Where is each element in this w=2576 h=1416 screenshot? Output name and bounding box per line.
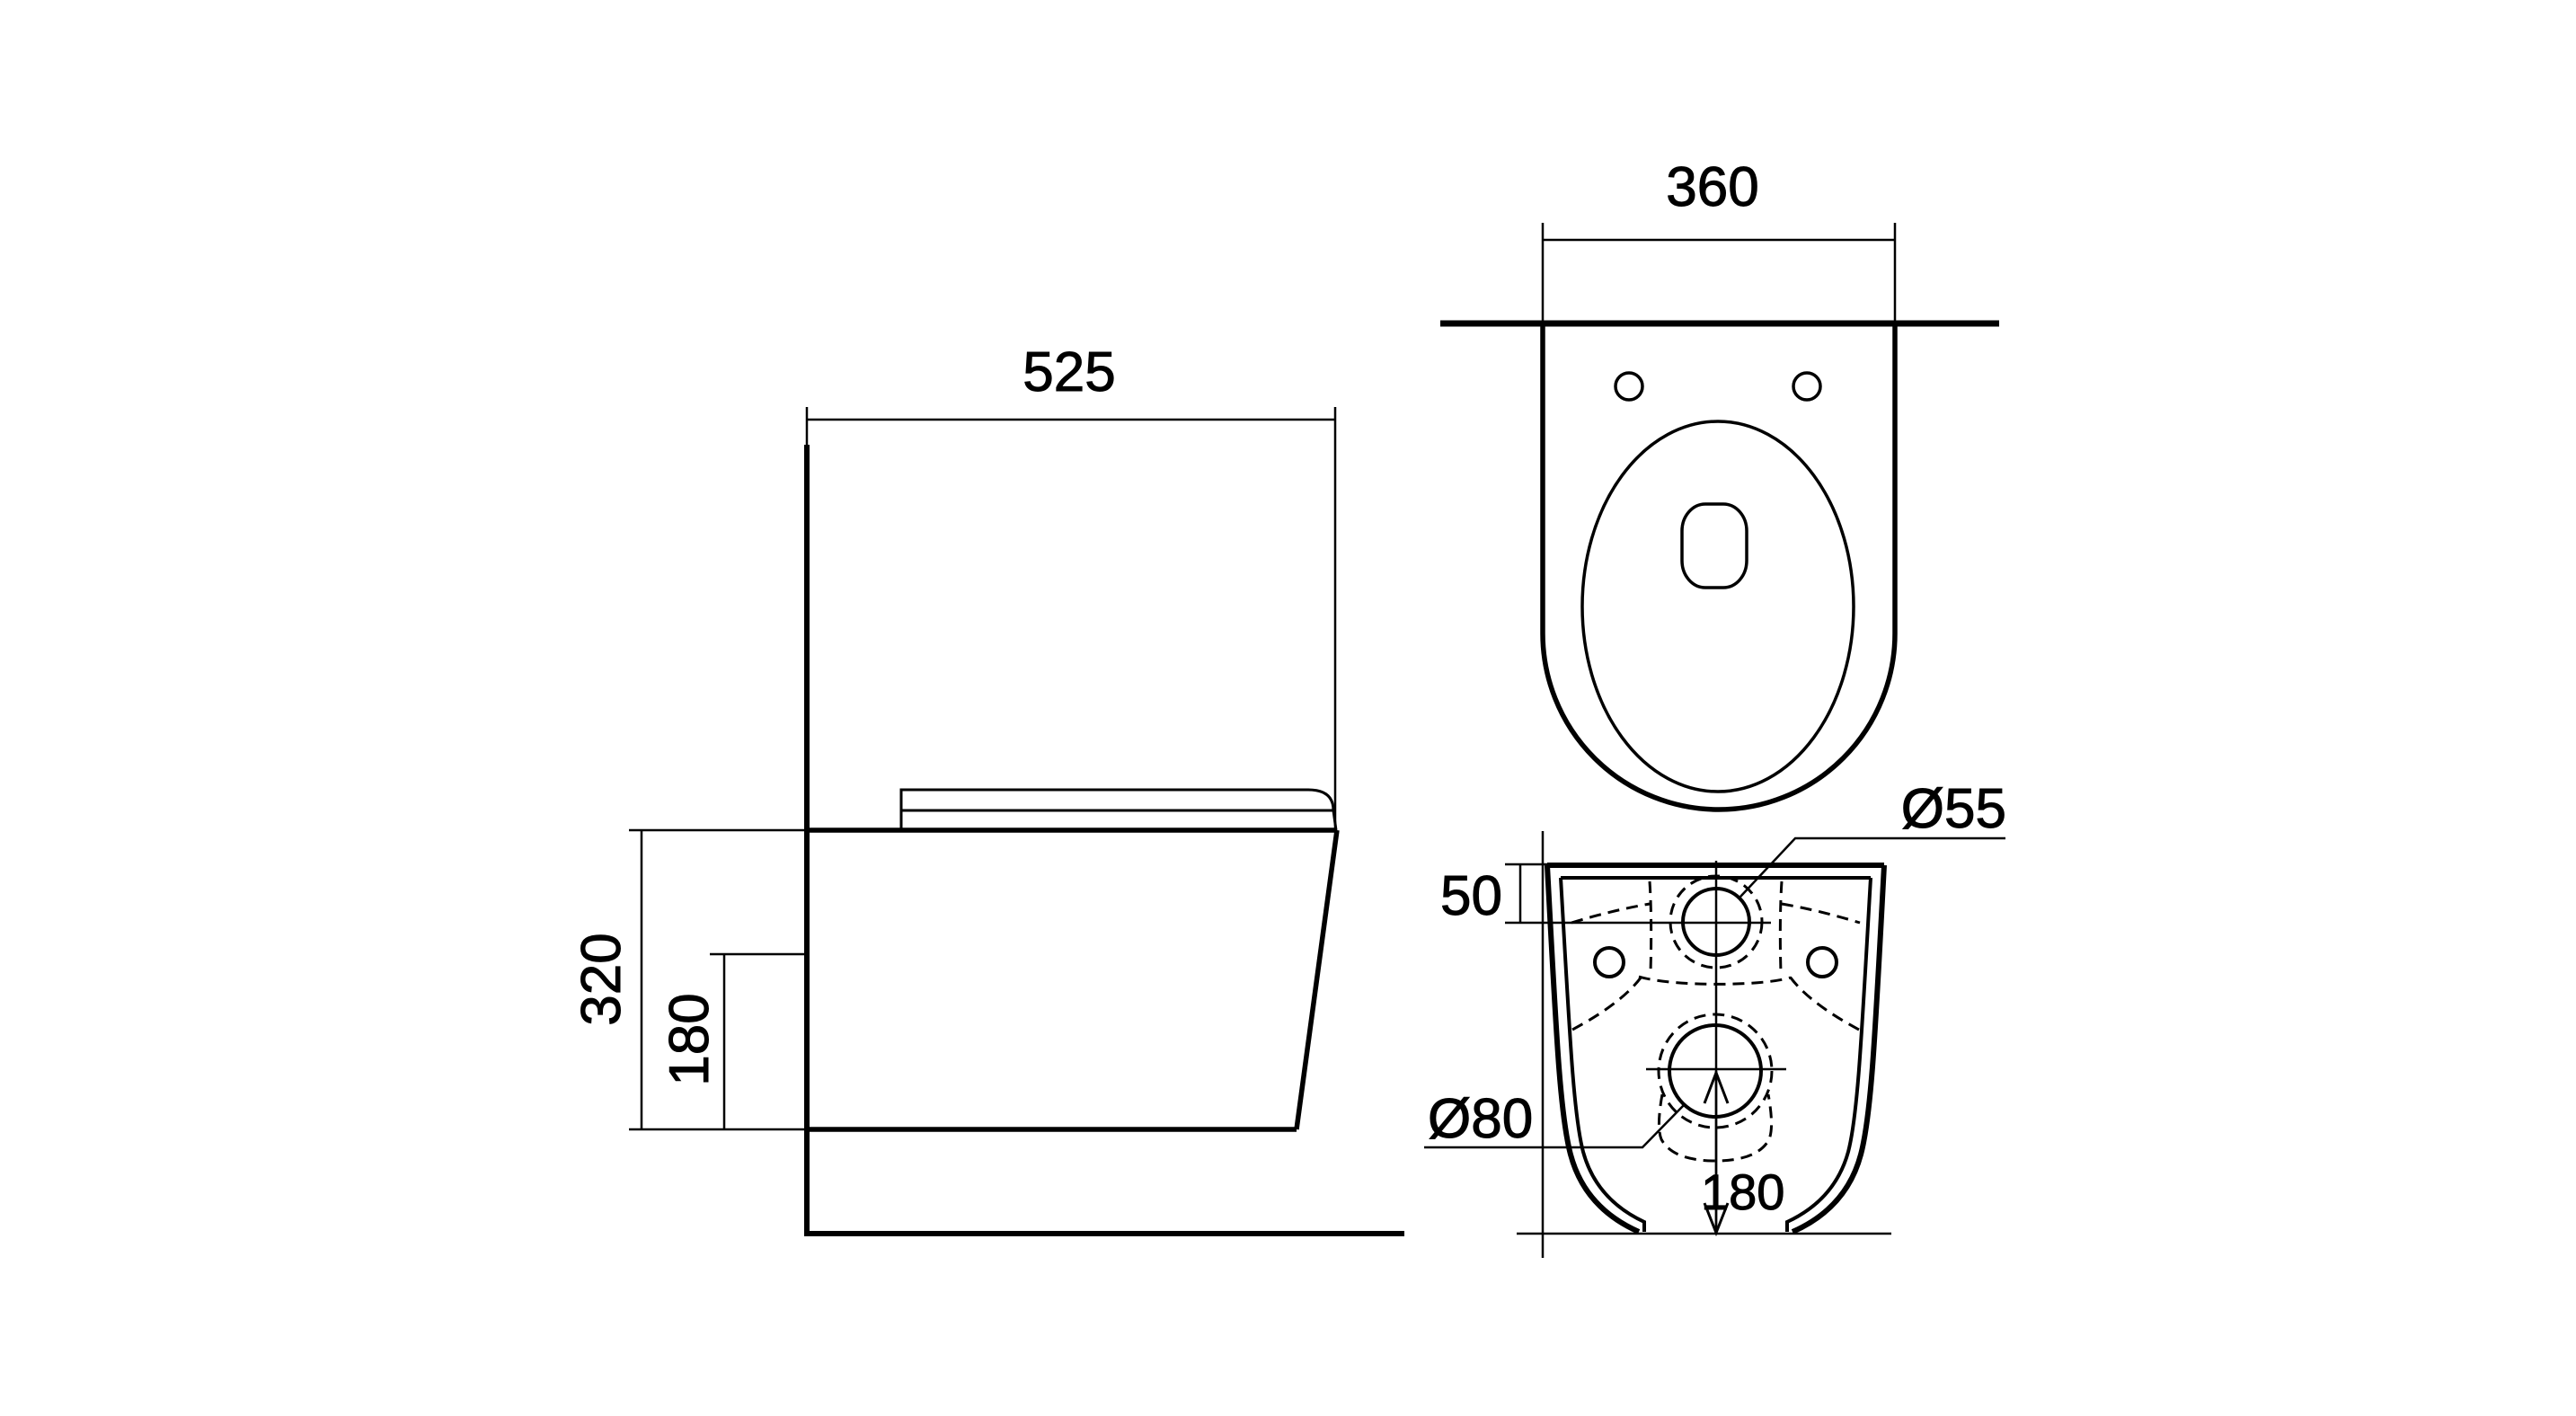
label-height-320: 320 — [571, 933, 633, 1025]
toilet-dimension-drawing: 525 320 180 360 — [0, 0, 2576, 1416]
label-side-180: 180 — [659, 993, 721, 1085]
dimension-side-180 — [710, 954, 807, 1129]
dimension-depth-525 — [807, 407, 1335, 829]
top-flush-hole — [1682, 504, 1747, 588]
side-seat — [901, 790, 1336, 830]
label-depth-525: 525 — [1022, 341, 1115, 403]
label-outlet-height-180: 180 — [1701, 1164, 1784, 1220]
top-bowl-rim — [1582, 421, 1854, 792]
rear-fixing-hole-left — [1595, 948, 1624, 977]
rear-fixing-hole-right — [1808, 948, 1837, 977]
top-fixing-hole-right — [1793, 373, 1820, 400]
top-body-outline — [1543, 323, 1895, 810]
label-outlet-diameter: Ø80 — [1428, 1088, 1533, 1150]
top-fixing-hole-left — [1616, 373, 1642, 400]
label-width-360: 360 — [1666, 156, 1758, 218]
side-view: 525 320 180 — [571, 341, 1404, 1234]
dimension-width-360 — [1543, 223, 1895, 323]
technical-drawing-sheet: 525 320 180 360 — [0, 0, 2576, 1416]
side-body-front-slant — [1297, 830, 1337, 1129]
top-view: 360 — [1440, 156, 1999, 810]
label-inlet-diameter: Ø55 — [1901, 778, 2006, 840]
label-inlet-offset-50: 50 — [1440, 865, 1502, 927]
rear-view: 50 Ø55 Ø80 180 — [1424, 778, 2006, 1258]
